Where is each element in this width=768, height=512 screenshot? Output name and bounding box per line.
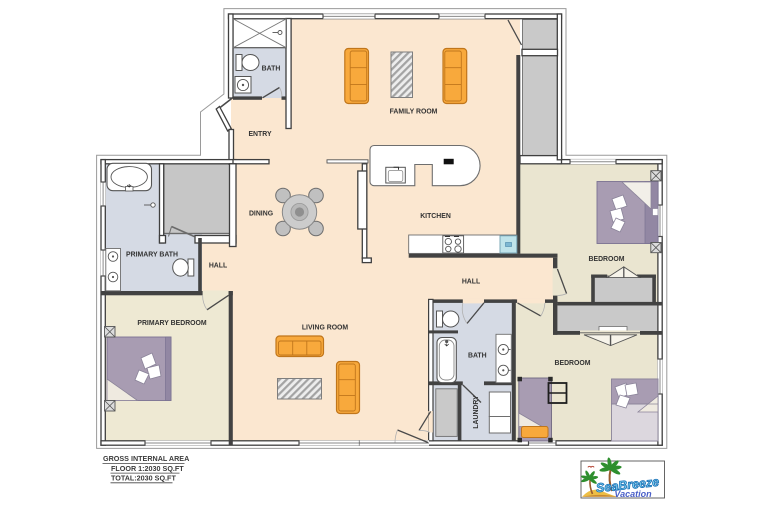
svg-text:GROSS INTERNAL AREA: GROSS INTERNAL AREA — [103, 454, 189, 463]
svg-text:KITCHEN: KITCHEN — [420, 213, 451, 220]
svg-text:LIVING ROOM: LIVING ROOM — [302, 325, 349, 332]
svg-text:ENTRY: ENTRY — [248, 131, 272, 138]
svg-text:HALL: HALL — [462, 279, 480, 286]
svg-text:FLOOR 1:2030 SQ.FT: FLOOR 1:2030 SQ.FT — [111, 464, 184, 473]
svg-text:TOTAL:2030 SQ.FT: TOTAL:2030 SQ.FT — [111, 474, 176, 483]
svg-text:DINING: DINING — [249, 211, 273, 218]
svg-text:FAMILY ROOM: FAMILY ROOM — [390, 108, 438, 115]
svg-text:LAUNDRY: LAUNDRY — [473, 395, 480, 429]
svg-text:BATH: BATH — [262, 66, 281, 73]
svg-text:PRIMARY BEDROOM: PRIMARY BEDROOM — [137, 320, 207, 327]
svg-text:PRIMARY BATH: PRIMARY BATH — [126, 251, 178, 258]
svg-text:BEDROOM: BEDROOM — [555, 360, 591, 367]
svg-text:Vacation: Vacation — [614, 489, 652, 499]
svg-text:HALL: HALL — [209, 263, 227, 270]
svg-text:BEDROOM: BEDROOM — [589, 256, 625, 263]
svg-text:BATH: BATH — [468, 353, 487, 360]
